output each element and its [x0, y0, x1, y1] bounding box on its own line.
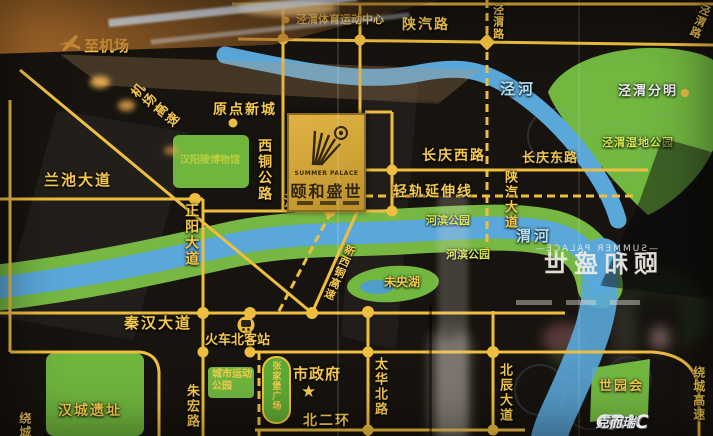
label-hanyangling-museum: 汉阳陵博物馆 [180, 155, 244, 167]
label-weiyang-lake: 未央湖 [384, 276, 420, 290]
label-changqing-east-road: 长庆东路 [522, 152, 578, 167]
label-shanqi-avenue: 陕汽大道 [501, 170, 516, 230]
airplane-icon [56, 32, 82, 56]
glass-glare-overlay [0, 0, 713, 436]
cric-brand-text: CRIC [596, 411, 650, 433]
label-changqing-west-road: 长庆西路 [422, 148, 486, 164]
label-airport-expressway: 机场高速 [126, 83, 182, 133]
label-jingwei-fenming: 泾渭分明 [618, 85, 678, 100]
label-beichen-avenue: 北辰大道 [496, 363, 511, 423]
label-qinhan-avenue: 秦汉大道 [124, 315, 192, 332]
wei-river [0, 228, 600, 288]
project-tagline-bar [320, 201, 336, 205]
handbag-reflection [650, 326, 670, 350]
train-station-icon [238, 317, 255, 334]
label-zhuhong-road: 朱宏路 [183, 384, 198, 429]
label-jingwei-road-right: 泾渭路 [687, 2, 712, 40]
label-xitong-highway: 西铜公路 [256, 138, 272, 202]
label-north-2nd-ring: 北二环 [303, 413, 351, 429]
cric-brand-cn-text: 克而瑞 [596, 412, 635, 431]
label-light-rail-extension: 轻轨延伸线 [393, 184, 473, 200]
label-shanqi-road: 陕汽路 [402, 17, 450, 33]
flower-bouquet-reflection [542, 323, 588, 355]
hancheng-ruins-area [46, 353, 144, 436]
map-artwork [0, 0, 713, 436]
label-lanchi-avenue: 兰池大道 [44, 172, 112, 189]
label-hancheng-ruins: 汉城遗址 [58, 403, 122, 419]
label-yuandian-new-town: 原点新城 [213, 102, 277, 118]
project-tagline-bar [343, 201, 359, 205]
fenming-poi-dot [681, 89, 689, 97]
label-jingwei-road: 泾渭路 [491, 4, 504, 40]
project-logo-box: SUMMER PALACE 颐和盛世 [287, 113, 366, 212]
person-reflection [610, 300, 636, 382]
project-name-cn: 颐和盛世 [289, 178, 364, 202]
label-expo-park: 世园会 [599, 380, 644, 395]
foliage-reflection [612, 270, 707, 355]
label-jing-river: 泾河 [500, 81, 536, 98]
label-wei-river: 渭河 [516, 228, 552, 245]
label-to-airport: 至机场 [84, 38, 129, 55]
project-name-en: SUMMER PALACE [289, 170, 364, 177]
sports-center-poi-dot [283, 17, 290, 24]
label-raocheng-expressway-left: 绕城高速 [17, 412, 31, 436]
mirrored-signage-cn: 颐和盛世 [538, 244, 658, 279]
person-head-reflection [440, 322, 458, 340]
mirrored-signage-en: —SUMMER PALACE— [533, 244, 658, 254]
glass-reflection-underlayer [0, 0, 713, 436]
person-reflection [636, 295, 682, 435]
jingwei-wetland-area [548, 48, 713, 215]
person-reflection [430, 330, 470, 436]
project-fan-logo-icon [305, 121, 353, 167]
yuandian-poi-dot [229, 119, 238, 128]
label-new-xitong-expressway: 新西铜高速 [321, 242, 357, 302]
label-riverside-park-south: 河滨公园 [446, 249, 490, 262]
label-city-hall: 市政府 [293, 366, 341, 383]
reflection-wedge [0, 110, 190, 340]
city-hall-star-icon: ★ [301, 383, 316, 403]
flower-leaves-reflection [552, 345, 588, 371]
label-jingwei-wetland-park: 泾渭湿地公园 [602, 137, 674, 150]
label-zhengyang-avenue: 正阳大道 [183, 203, 199, 267]
location-map-photo: 至机场 机场高速 泾渭体育运动中心 陕汽路 泾渭路 泾渭路 泾河 泾渭分明 泾渭… [0, 0, 713, 436]
label-raocheng-expressway-right: 绕城高速 [691, 366, 705, 422]
label-city-sports-park: 城市运动公园 [212, 369, 252, 392]
river-south-branch [549, 272, 600, 436]
label-north-railway-station: 火车北客站 [205, 334, 270, 349]
label-taihua-north-road: 太华北路 [371, 357, 386, 417]
project-tagline-bar [297, 201, 313, 205]
label-sports-center: 泾渭体育运动中心 [296, 14, 384, 27]
label-zhangjiabao-square: 张家堡广场 [270, 361, 280, 411]
label-riverside-park-north: 河滨公园 [426, 215, 470, 228]
cric-eye-icon [596, 414, 626, 430]
